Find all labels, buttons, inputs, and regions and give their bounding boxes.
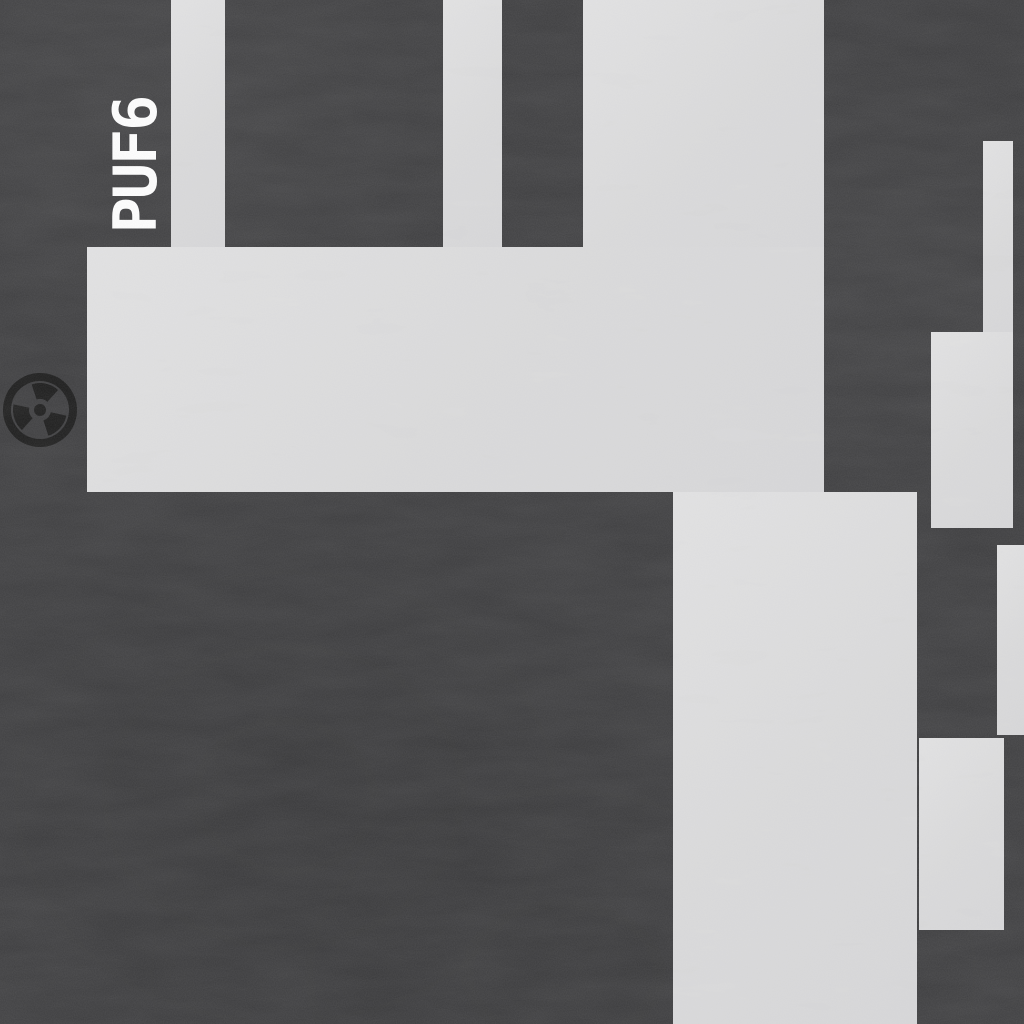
- map-room-east-strip-upper: [983, 141, 1013, 332]
- map-room-north-strip-a: [171, 0, 225, 247]
- facility-map-canvas[interactable]: PUF6: [0, 0, 1024, 1024]
- map-room-east-room-lower: [919, 738, 1004, 930]
- map-room-north-strip-b: [443, 0, 502, 247]
- map-room-north-block: [583, 0, 824, 247]
- map-room-central-corridor: [673, 492, 917, 1024]
- map-room-east-strip-lower: [997, 545, 1024, 735]
- room-label: PUF6: [109, 85, 163, 245]
- map-room-east-room-upper: [931, 332, 1013, 528]
- map-room-main-hall: [87, 247, 824, 492]
- radiation-icon: [3, 373, 77, 447]
